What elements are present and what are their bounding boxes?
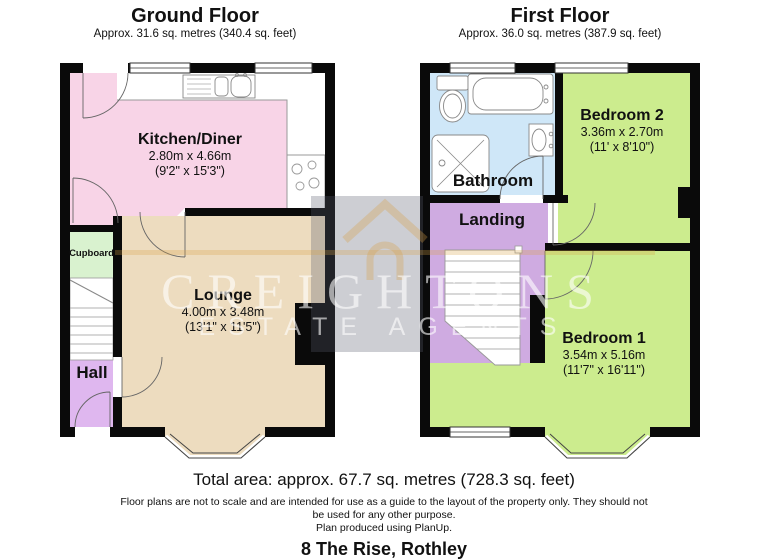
landing-label: Landing (459, 210, 525, 229)
bedroom1-label: Bedroom 1 (562, 330, 646, 347)
ground-floor-header: Ground Floor Approx. 31.6 sq. metres (34… (55, 5, 335, 41)
kitchen-label: Kitchen/Diner (138, 131, 242, 148)
first-floor-plan: Bathroom Bedroom 2 3.36m x 2.70m (11' x … (415, 60, 710, 470)
ff-bay-window (545, 427, 650, 458)
first-floor-area: Approx. 36.0 sq. metres (387.9 sq. feet) (420, 27, 700, 41)
gf-bay-window (165, 427, 265, 458)
ground-floor-plan: Kitchen/Diner 2.80m x 4.66m (9'2" x 15'3… (55, 60, 345, 470)
kitchen-dims-imperial: (9'2" x 15'3") (155, 164, 225, 178)
bedroom2-dims-imperial: (11' x 8'10") (590, 140, 655, 154)
room-bedroom-2 (558, 73, 690, 243)
gf-chimney-breast (295, 303, 325, 365)
bathroom-label: Bathroom (453, 171, 533, 190)
back-door-opening (83, 63, 128, 73)
bedroom2-dims-metric: 3.36m x 2.70m (581, 125, 664, 139)
footer: Total area: approx. 67.7 sq. metres (728… (0, 470, 768, 559)
gf-stairs (70, 278, 113, 360)
lounge-dims-metric: 4.00m x 3.48m (182, 305, 265, 319)
ground-floor-title: Ground Floor (55, 5, 335, 27)
ground-floor-area: Approx. 31.6 sq. metres (340.4 sq. feet) (55, 27, 335, 41)
bedroom2-label: Bedroom 2 (580, 107, 664, 124)
kitchen-sink (183, 74, 255, 99)
ff-chimney-breast (678, 187, 690, 218)
disclaimer-line-2: be used for any other purpose. (0, 509, 768, 522)
property-address: 8 The Rise, Rothley (0, 539, 768, 559)
lounge-dims-imperial: (13'1" x 11'5") (185, 320, 261, 334)
bedroom1-dims-metric: 3.54m x 5.16m (563, 348, 646, 362)
kitchen-floor (70, 73, 117, 225)
produced-with-text: Plan produced using PlanUp. (0, 522, 768, 535)
toilet (437, 76, 468, 122)
kitchen-dims-metric: 2.80m x 4.66m (149, 149, 232, 163)
bathtub (468, 74, 553, 114)
disclaimer-line-1: Floor plans are not to scale and are int… (0, 496, 768, 509)
bedroom1-dims-imperial: (11'7" x 16'11") (563, 363, 645, 377)
first-floor-title: First Floor (420, 5, 700, 27)
kitchen-hob (287, 155, 325, 215)
sink (529, 124, 553, 156)
front-door-opening (75, 427, 110, 437)
newel-post (515, 246, 522, 253)
cupboard-label: Cupboard (69, 248, 114, 259)
total-area-text: Total area: approx. 67.7 sq. metres (728… (0, 470, 768, 490)
lounge-label: Lounge (194, 287, 252, 304)
first-floor-header: First Floor Approx. 36.0 sq. metres (387… (420, 5, 700, 41)
hall-label: Hall (76, 363, 107, 382)
